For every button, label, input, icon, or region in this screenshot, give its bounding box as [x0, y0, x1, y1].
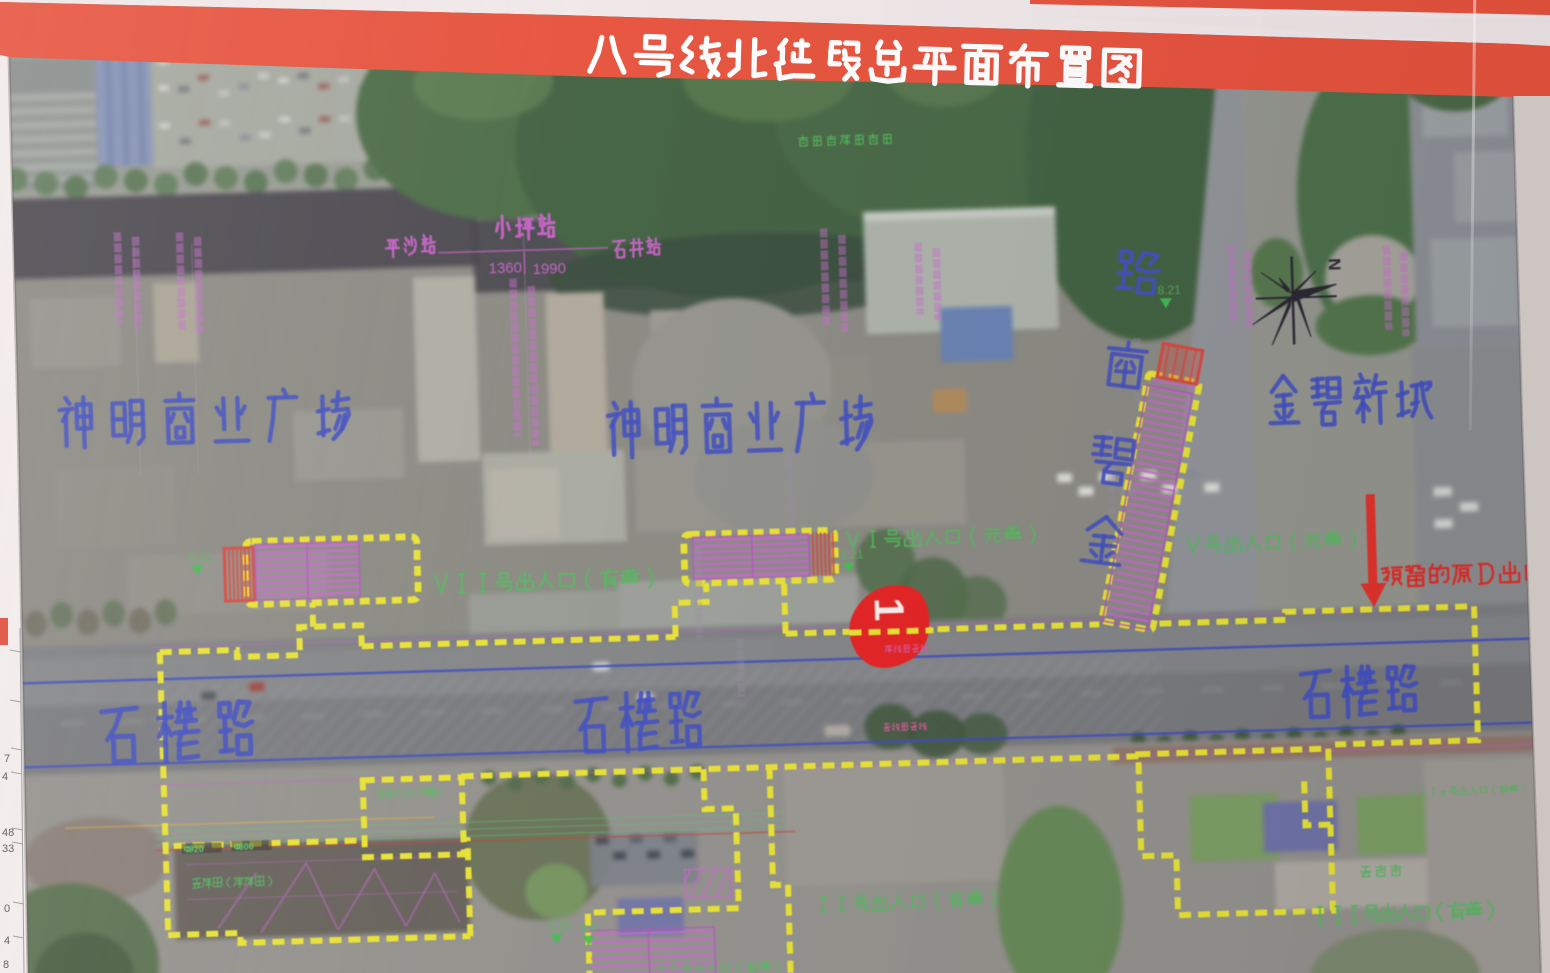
svg-text:0: 0 [199, 844, 204, 854]
svg-text:8.21: 8.21 [1157, 283, 1181, 298]
svg-text:1990: 1990 [532, 260, 566, 278]
svg-text:4: 4 [4, 935, 10, 947]
svg-text:1: 1 [866, 597, 914, 622]
svg-text:0: 0 [248, 842, 253, 852]
svg-text:4: 4 [2, 771, 8, 783]
svg-text:0: 0 [4, 903, 10, 915]
svg-text:48: 48 [2, 827, 14, 839]
svg-text:8.69: 8.69 [548, 918, 572, 933]
svg-text:8.21: 8.21 [840, 547, 864, 562]
svg-text:1360: 1360 [488, 259, 522, 277]
svg-text:8.21: 8.21 [189, 550, 213, 565]
svg-text:7: 7 [4, 753, 10, 765]
svg-text:33: 33 [2, 843, 14, 855]
svg-text:N: N [1325, 258, 1344, 271]
svg-text:9.0: 9.0 [580, 920, 597, 934]
svg-text:8: 8 [3, 959, 9, 971]
